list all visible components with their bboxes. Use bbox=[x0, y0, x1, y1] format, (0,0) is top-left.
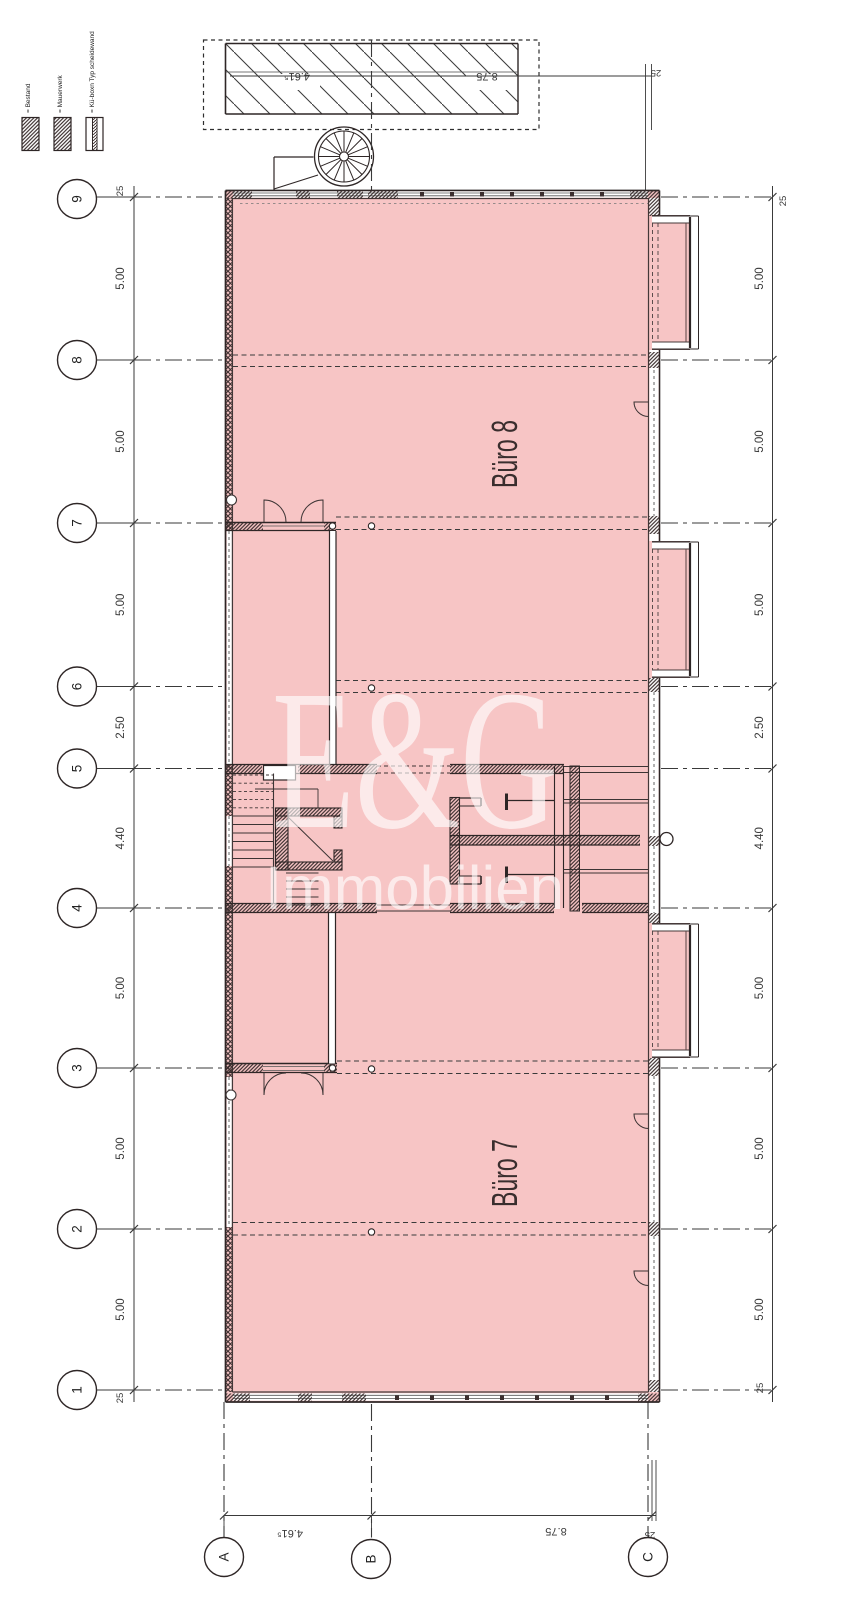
svg-text:A: A bbox=[217, 1552, 232, 1561]
svg-text:5: 5 bbox=[70, 765, 85, 773]
svg-text:C: C bbox=[641, 1552, 656, 1562]
svg-text:5.00: 5.00 bbox=[115, 430, 127, 452]
svg-text:5.00: 5.00 bbox=[115, 594, 127, 616]
svg-text:25: 25 bbox=[778, 196, 789, 207]
svg-text:E&G: E&G bbox=[272, 650, 558, 871]
svg-text:5.00: 5.00 bbox=[115, 1298, 127, 1320]
svg-text:25: 25 bbox=[755, 1383, 766, 1394]
svg-text:25: 25 bbox=[651, 67, 662, 78]
svg-text:Büro 8: Büro 8 bbox=[484, 420, 525, 488]
svg-text:25: 25 bbox=[115, 186, 126, 197]
svg-text:8: 8 bbox=[70, 356, 85, 364]
svg-text:5.00: 5.00 bbox=[754, 594, 766, 616]
svg-text:5.00: 5.00 bbox=[754, 1298, 766, 1320]
svg-text:4.40: 4.40 bbox=[754, 827, 766, 849]
svg-text:Büro 7: Büro 7 bbox=[484, 1139, 525, 1207]
svg-text:5.00: 5.00 bbox=[115, 977, 127, 999]
svg-text:= Kü-boxn Typ scheidewand: = Kü-boxn Typ scheidewand bbox=[89, 31, 96, 113]
svg-text:3: 3 bbox=[70, 1064, 85, 1072]
svg-text:6: 6 bbox=[70, 683, 85, 691]
svg-text:5.00: 5.00 bbox=[754, 430, 766, 452]
svg-text:1: 1 bbox=[70, 1386, 85, 1394]
svg-text:2.50: 2.50 bbox=[115, 716, 127, 738]
svg-text:4.61⁵: 4.61⁵ bbox=[284, 70, 310, 82]
svg-text:Immobilien: Immobilien bbox=[265, 854, 564, 922]
svg-text:2.50: 2.50 bbox=[754, 716, 766, 738]
svg-text:B: B bbox=[364, 1554, 379, 1563]
svg-text:9: 9 bbox=[70, 195, 85, 203]
svg-text:5.00: 5.00 bbox=[115, 267, 127, 289]
svg-text:4.40: 4.40 bbox=[115, 827, 127, 849]
svg-text:5.00: 5.00 bbox=[115, 1137, 127, 1159]
svg-text:5.00: 5.00 bbox=[754, 1137, 766, 1159]
svg-text:4.61⁵: 4.61⁵ bbox=[277, 1527, 303, 1539]
svg-text:5.00: 5.00 bbox=[754, 977, 766, 999]
svg-text:= Bestand: = Bestand bbox=[25, 83, 32, 113]
svg-text:7: 7 bbox=[70, 519, 85, 527]
svg-text:4: 4 bbox=[70, 904, 85, 912]
svg-text:= Mauerwerk: = Mauerwerk bbox=[57, 75, 64, 113]
svg-text:25: 25 bbox=[115, 1393, 126, 1404]
svg-text:5.00: 5.00 bbox=[754, 267, 766, 289]
svg-text:2: 2 bbox=[70, 1225, 85, 1233]
svg-text:8.75: 8.75 bbox=[545, 1525, 566, 1537]
svg-text:8.75: 8.75 bbox=[476, 70, 497, 82]
